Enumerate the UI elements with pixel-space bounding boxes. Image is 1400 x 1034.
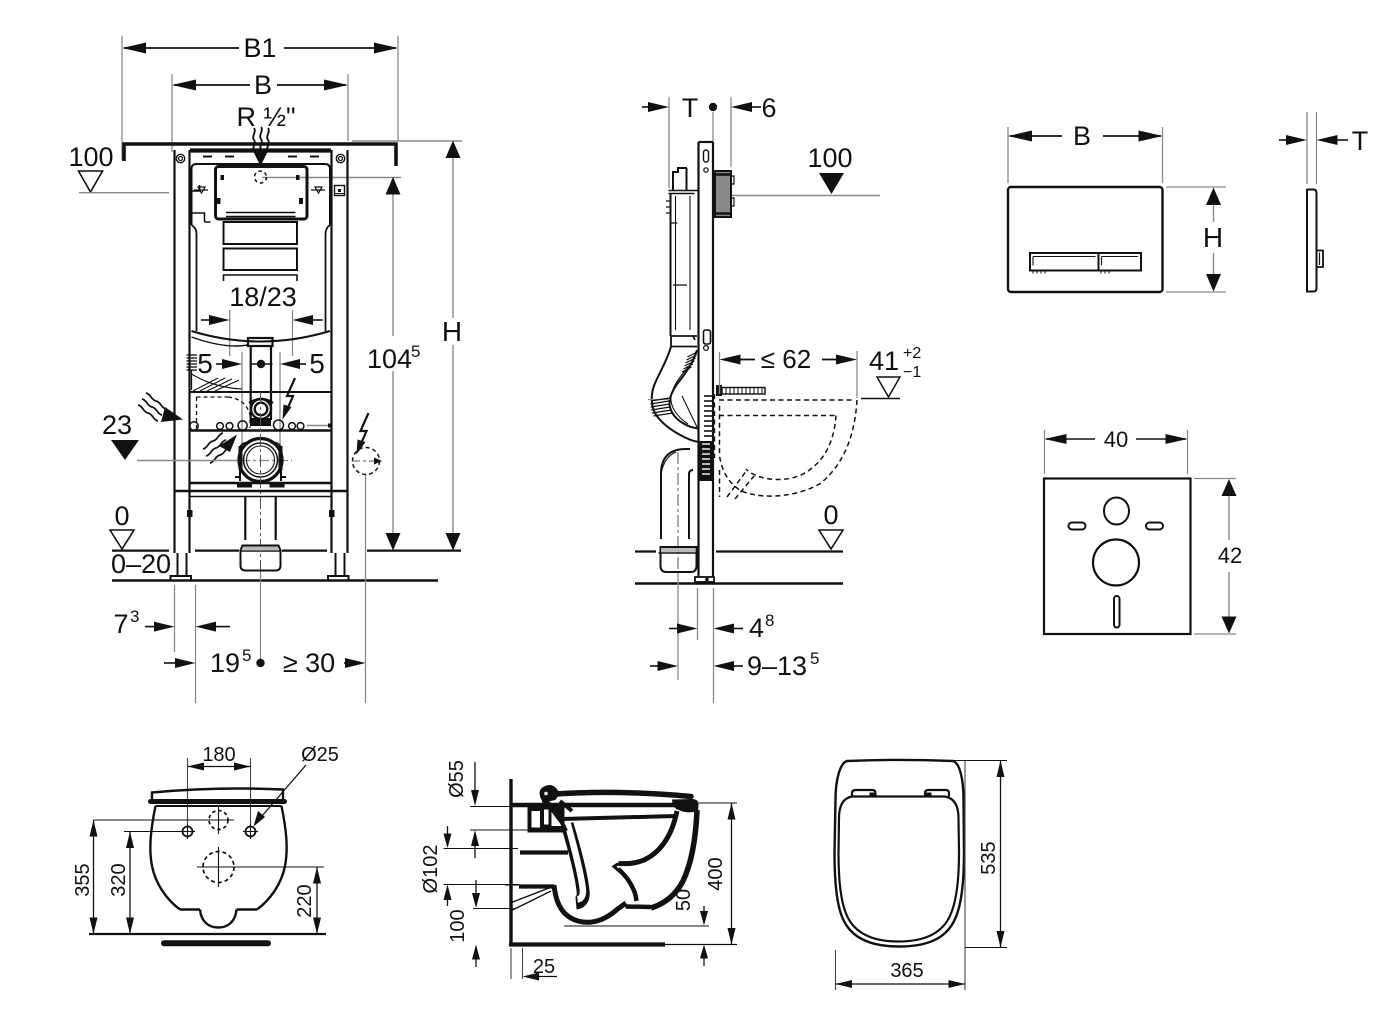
svg-text:18/23: 18/23 bbox=[229, 282, 297, 312]
svg-text:19: 19 bbox=[210, 648, 240, 678]
svg-text:100: 100 bbox=[447, 909, 469, 942]
svg-text:100: 100 bbox=[68, 142, 113, 172]
svg-text:42: 42 bbox=[1218, 543, 1242, 568]
svg-text:T: T bbox=[682, 93, 699, 123]
svg-text:≤ 62: ≤ 62 bbox=[761, 344, 811, 374]
svg-text:5: 5 bbox=[810, 649, 819, 668]
svg-text:23: 23 bbox=[102, 410, 132, 440]
svg-text:50: 50 bbox=[673, 889, 695, 911]
svg-text:5: 5 bbox=[242, 646, 251, 665]
svg-text:220: 220 bbox=[294, 884, 316, 917]
svg-text:≥ 30: ≥ 30 bbox=[283, 648, 335, 678]
svg-text:0: 0 bbox=[823, 500, 838, 530]
svg-text:5: 5 bbox=[411, 342, 420, 361]
svg-text:100: 100 bbox=[807, 143, 852, 173]
svg-text:B: B bbox=[1073, 121, 1091, 151]
svg-text:400: 400 bbox=[705, 857, 727, 890]
svg-text:8: 8 bbox=[765, 611, 774, 630]
svg-text:Ø25: Ø25 bbox=[301, 744, 339, 766]
svg-text:7: 7 bbox=[113, 609, 128, 639]
svg-text:B: B bbox=[254, 70, 272, 100]
svg-text:41: 41 bbox=[869, 346, 899, 376]
svg-text:−1: −1 bbox=[903, 364, 921, 381]
svg-text:5: 5 bbox=[309, 348, 325, 379]
svg-text:180: 180 bbox=[202, 744, 235, 766]
svg-text:Ø102: Ø102 bbox=[420, 845, 442, 894]
svg-text:Ø55: Ø55 bbox=[446, 760, 468, 798]
svg-text:6: 6 bbox=[761, 93, 776, 123]
svg-text:9–13: 9–13 bbox=[747, 651, 807, 681]
svg-text:40: 40 bbox=[1104, 427, 1128, 452]
svg-text:T: T bbox=[1352, 126, 1369, 156]
svg-text:H: H bbox=[1203, 222, 1223, 253]
svg-text:355: 355 bbox=[72, 863, 94, 896]
svg-text:R ½": R ½" bbox=[236, 102, 295, 132]
svg-text:H: H bbox=[442, 316, 462, 347]
svg-text:535: 535 bbox=[978, 841, 1000, 874]
svg-text:+2: +2 bbox=[903, 345, 921, 362]
svg-text:0: 0 bbox=[114, 501, 129, 531]
svg-text:5: 5 bbox=[197, 348, 213, 379]
svg-text:0–20: 0–20 bbox=[111, 549, 171, 579]
svg-text:320: 320 bbox=[108, 863, 130, 896]
svg-text:104: 104 bbox=[367, 344, 412, 374]
svg-text:365: 365 bbox=[890, 960, 923, 982]
svg-text:3: 3 bbox=[130, 607, 139, 626]
svg-text:B1: B1 bbox=[243, 33, 276, 63]
svg-text:4: 4 bbox=[749, 613, 764, 643]
